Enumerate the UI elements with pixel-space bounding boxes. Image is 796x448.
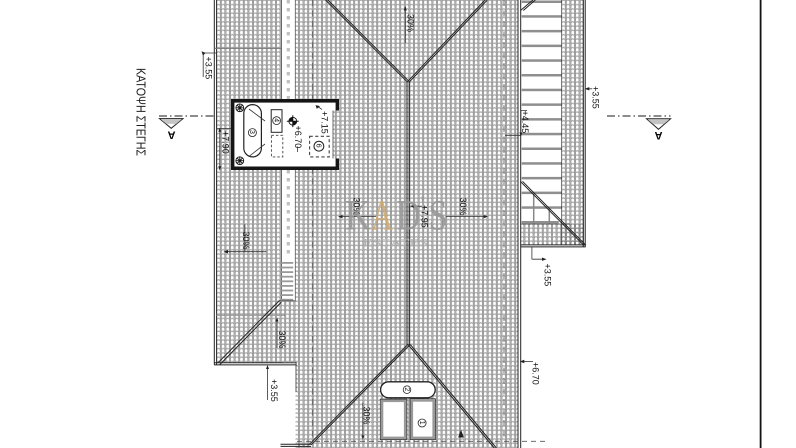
svg-text:3: 3 bbox=[248, 130, 255, 134]
svg-text:K: K bbox=[345, 193, 371, 240]
svg-text:A: A bbox=[654, 129, 662, 141]
svg-text:1: 1 bbox=[418, 421, 425, 425]
svg-text:+6.70: +6.70 bbox=[531, 362, 541, 385]
svg-text:ESTATES: ESTATES bbox=[363, 238, 428, 250]
svg-text:+3.55: +3.55 bbox=[590, 86, 600, 109]
svg-text:+4.45: +4.45 bbox=[520, 111, 530, 134]
svg-text:+3.55: +3.55 bbox=[269, 379, 279, 402]
svg-text:6: 6 bbox=[314, 144, 323, 148]
svg-text:S: S bbox=[429, 193, 448, 240]
svg-text:+3.55: +3.55 bbox=[542, 264, 552, 287]
svg-text:+3.55: +3.55 bbox=[203, 57, 213, 80]
svg-text:A: A bbox=[167, 129, 175, 141]
svg-text:4: 4 bbox=[272, 118, 279, 122]
svg-text:2: 2 bbox=[403, 387, 410, 391]
svg-text:ΚΑΤΟΨΗ ΣΤΕΓΗΣ: ΚΑΤΟΨΗ ΣΤΕΓΗΣ bbox=[134, 68, 149, 156]
svg-text:': ' bbox=[421, 191, 425, 216]
svg-text:A: A bbox=[371, 193, 393, 240]
svg-text:+7.90: +7.90 bbox=[221, 131, 231, 154]
svg-text:D: D bbox=[397, 193, 421, 240]
svg-text:30%: 30% bbox=[458, 198, 468, 216]
svg-text:30%: 30% bbox=[241, 232, 251, 250]
svg-text:30%: 30% bbox=[277, 331, 287, 349]
svg-text:+6.70: +6.70 bbox=[293, 126, 303, 149]
svg-text:30%: 30% bbox=[405, 14, 415, 32]
svg-text:+7.15: +7.15 bbox=[320, 111, 330, 134]
